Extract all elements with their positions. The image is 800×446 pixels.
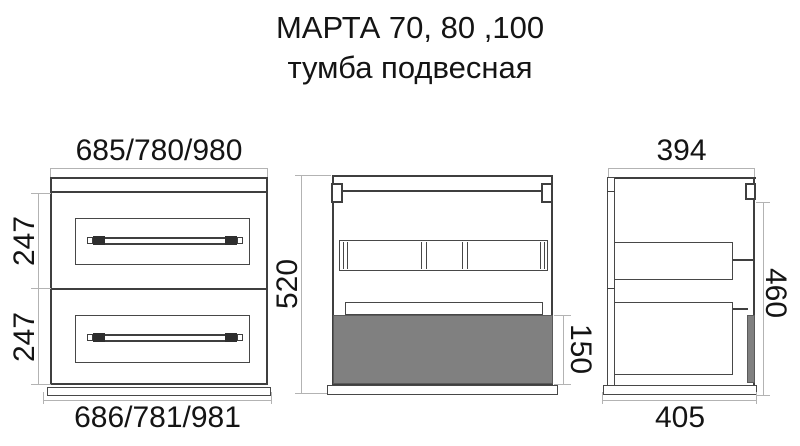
dimension-tick [602, 392, 603, 404]
hanging-height-dimension: 460 [760, 253, 790, 333]
drawer-box-side-1 [614, 242, 733, 280]
top-rail-line [51, 191, 267, 193]
crossbar-line [462, 242, 463, 269]
dimension-tick [31, 288, 51, 289]
dimension-tick [267, 168, 268, 177]
drawer-divider-line [51, 288, 267, 290]
handle-mount-icon [225, 333, 237, 342]
drawer-box-side-2 [614, 302, 733, 375]
wall-bracket-side [745, 183, 756, 200]
dimension-tick [295, 175, 331, 176]
handle-end-icon [237, 237, 243, 244]
crossbar-line [540, 242, 541, 269]
front-width-top-dimension: 685/780/980 [50, 136, 268, 166]
dimension-tick [608, 168, 609, 177]
drawer1-height-dimension: 247 [10, 201, 40, 281]
depth-top-dimension-line [608, 168, 755, 169]
dimension-tick [31, 193, 51, 194]
dimension-tick [756, 392, 757, 404]
crossbar-line [544, 242, 545, 269]
bottom-strip-front [47, 387, 271, 396]
front-width-bottom-dimension: 686/781/981 [43, 403, 272, 433]
bottom-back-panel [333, 315, 553, 384]
hanging-rail-line [343, 190, 542, 192]
dimension-tick [50, 168, 51, 177]
drawer-handle-1 [87, 236, 243, 245]
bottom-strip-side [603, 385, 757, 395]
handle-end-icon [237, 334, 243, 341]
wall-bracket-left [331, 183, 343, 203]
depth-top-dimension: 394 [608, 136, 755, 166]
back-crossbar [339, 240, 548, 271]
crossbar-line [347, 242, 348, 269]
depth-bottom-dimension: 405 [605, 403, 755, 433]
handle-mount-icon [93, 333, 105, 342]
dimension-tick [754, 168, 755, 177]
technical-drawing: МАРТА 70, 80 ,100 тумба подвесная 685/78… [0, 0, 800, 446]
dimension-tick [295, 393, 327, 394]
handle-bar [105, 237, 225, 245]
wall-bracket-right [541, 183, 553, 203]
front-width-top-dimension-line [50, 168, 268, 169]
side-front-edge-joint [607, 288, 615, 289]
side-front-edge-joint [607, 191, 615, 192]
dimension-tick [757, 395, 770, 396]
drawer-rail-line [733, 259, 754, 261]
handle-mount-icon [93, 236, 105, 245]
drawer-handle-2 [87, 333, 243, 342]
dimension-tick [31, 384, 51, 385]
back-panel-side-strip [747, 315, 755, 383]
crossbar-line [421, 242, 422, 269]
handle-mount-icon [225, 236, 237, 245]
panel-height-dimension: 150 [565, 309, 595, 389]
crossbar-line [343, 242, 344, 269]
side-top-line [607, 177, 756, 179]
crossbar-line [426, 242, 427, 269]
handle-bar [105, 334, 225, 342]
drawing-title: МАРТА 70, 80 ,100 [10, 12, 800, 43]
drawer2-height-dimension: 247 [10, 297, 40, 377]
crossbar-line [467, 242, 468, 269]
drawer-rail-line [733, 308, 748, 310]
drawing-subtitle: тумба подвесная [10, 52, 800, 83]
total-height-dimension: 520 [273, 244, 303, 324]
lower-rail-strip [345, 302, 543, 315]
bottom-strip-back [327, 385, 558, 395]
